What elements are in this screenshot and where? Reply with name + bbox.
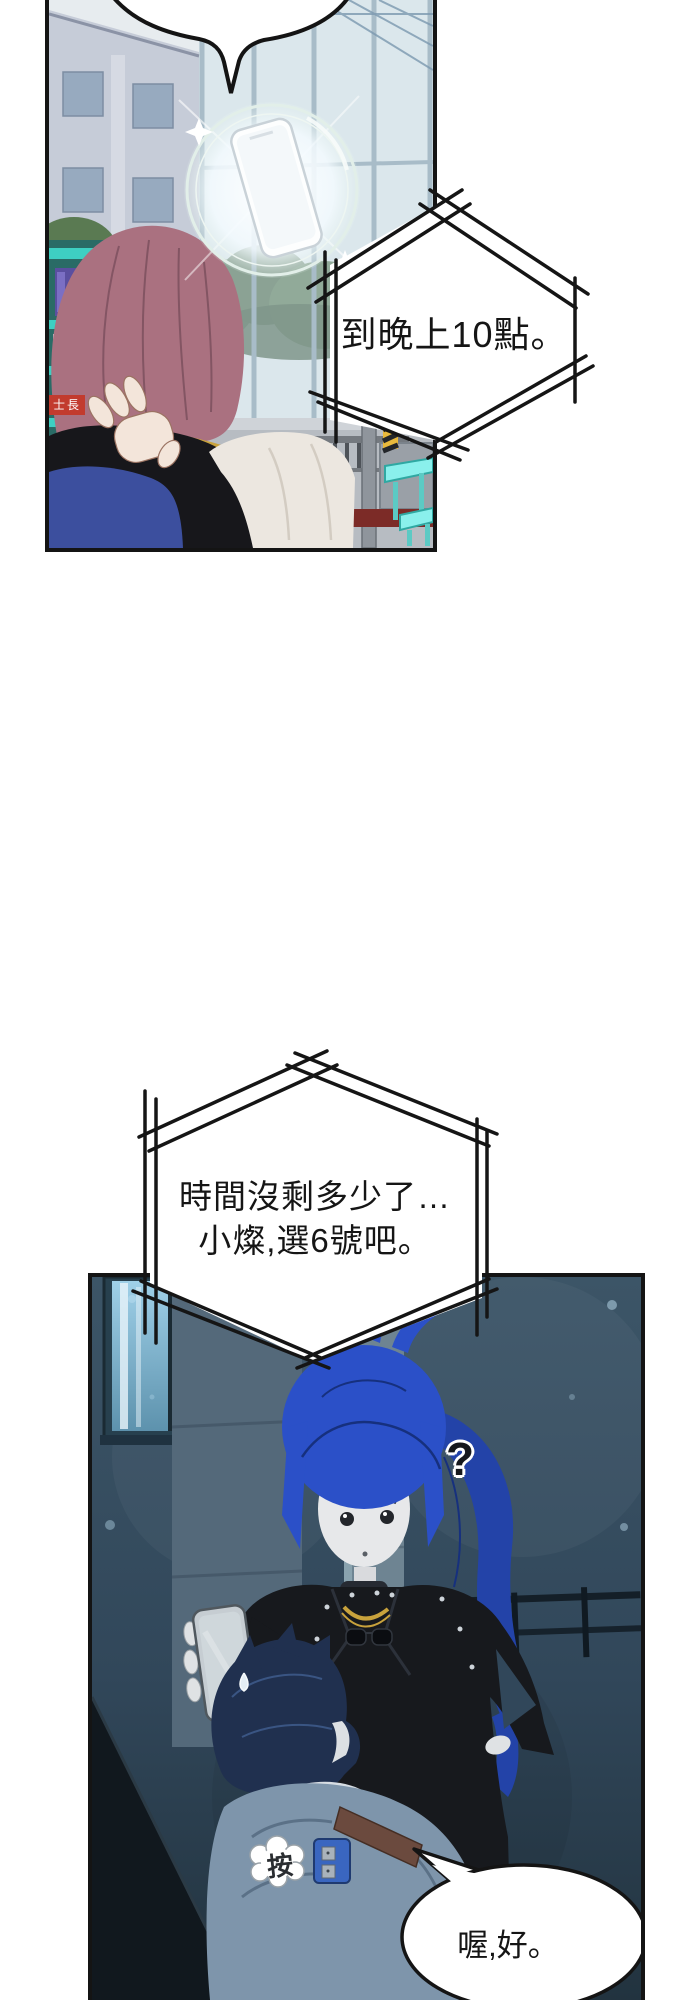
speech-bubble-2: 時間沒剩多少了… 小燦,選6號吧。 bbox=[140, 1175, 490, 1263]
sfx-press-text: 按 bbox=[260, 1844, 300, 1885]
night-scene bbox=[92, 1277, 641, 2000]
speech-bubble-2-line1: 時間沒剩多少了… bbox=[140, 1175, 490, 1219]
speech-bubble-2-line2: 小燦,選6號吧。 bbox=[140, 1219, 490, 1263]
girl-mouth bbox=[363, 1552, 368, 1557]
gadget bbox=[314, 1839, 350, 1883]
speech-bubble-1-text: 到晚上10點。 bbox=[330, 306, 578, 358]
bottom-panel bbox=[88, 1273, 645, 2000]
comic-page: 士長 到晚上10點。 bbox=[0, 0, 690, 2000]
store-sign: 士長 bbox=[49, 395, 85, 415]
question-mark: ? bbox=[434, 1432, 486, 1486]
speech-bubble-3-text: 喔,好。 bbox=[428, 1920, 588, 1965]
